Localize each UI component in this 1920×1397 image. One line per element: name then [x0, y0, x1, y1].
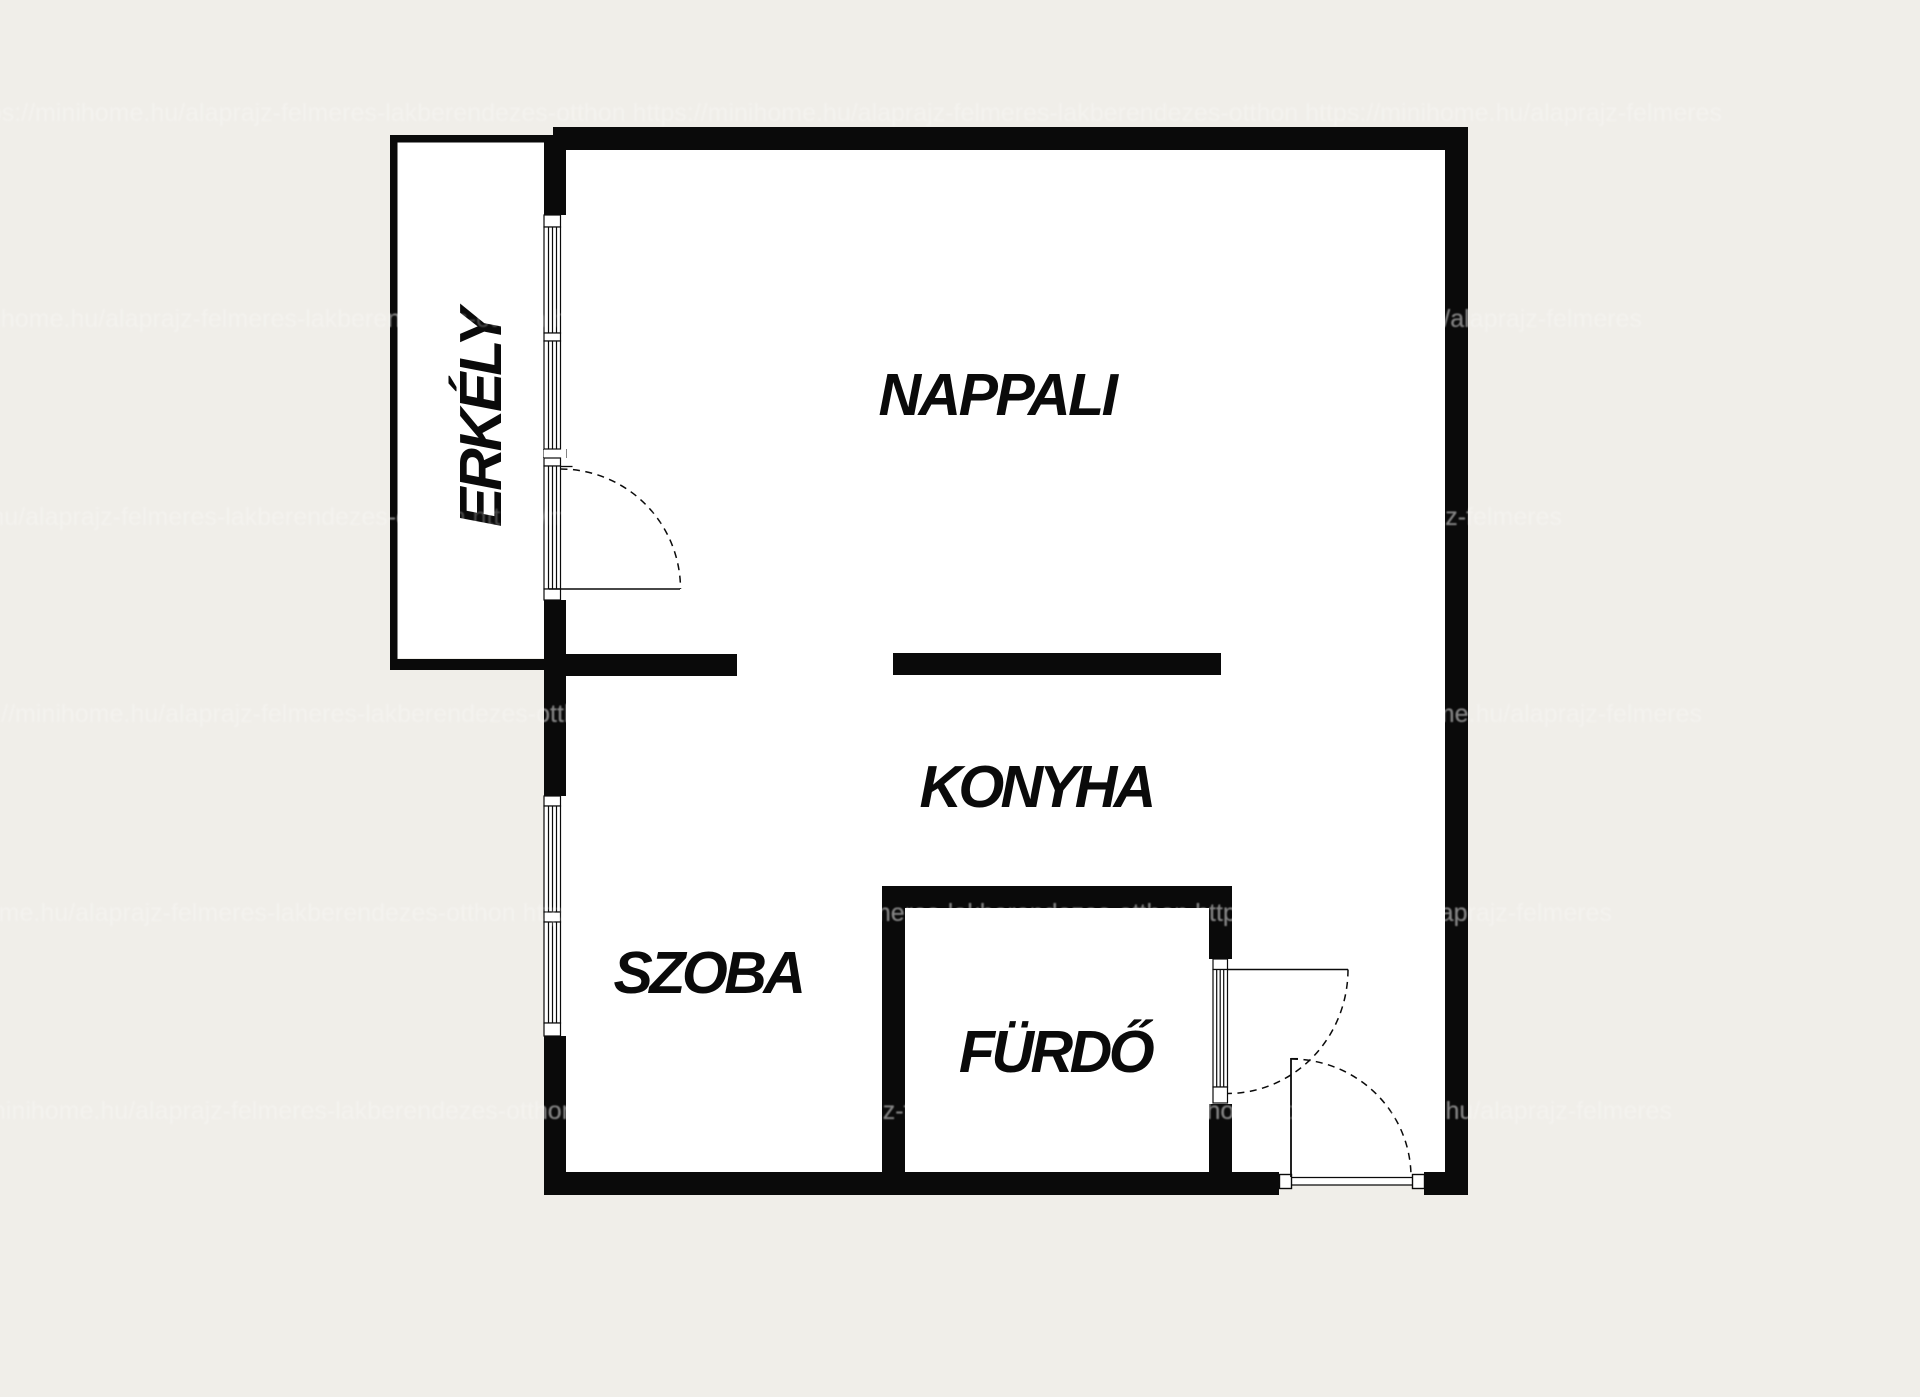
svg-text:KONYHA: KONYHA — [920, 754, 1153, 820]
svg-text:SZOBA: SZOBA — [614, 940, 803, 1006]
svg-text:FÜRDŐ: FÜRDŐ — [959, 1019, 1154, 1085]
svg-text:NAPPALI: NAPPALI — [878, 362, 1119, 428]
svg-text:ERKÉLY: ERKÉLY — [448, 303, 514, 527]
